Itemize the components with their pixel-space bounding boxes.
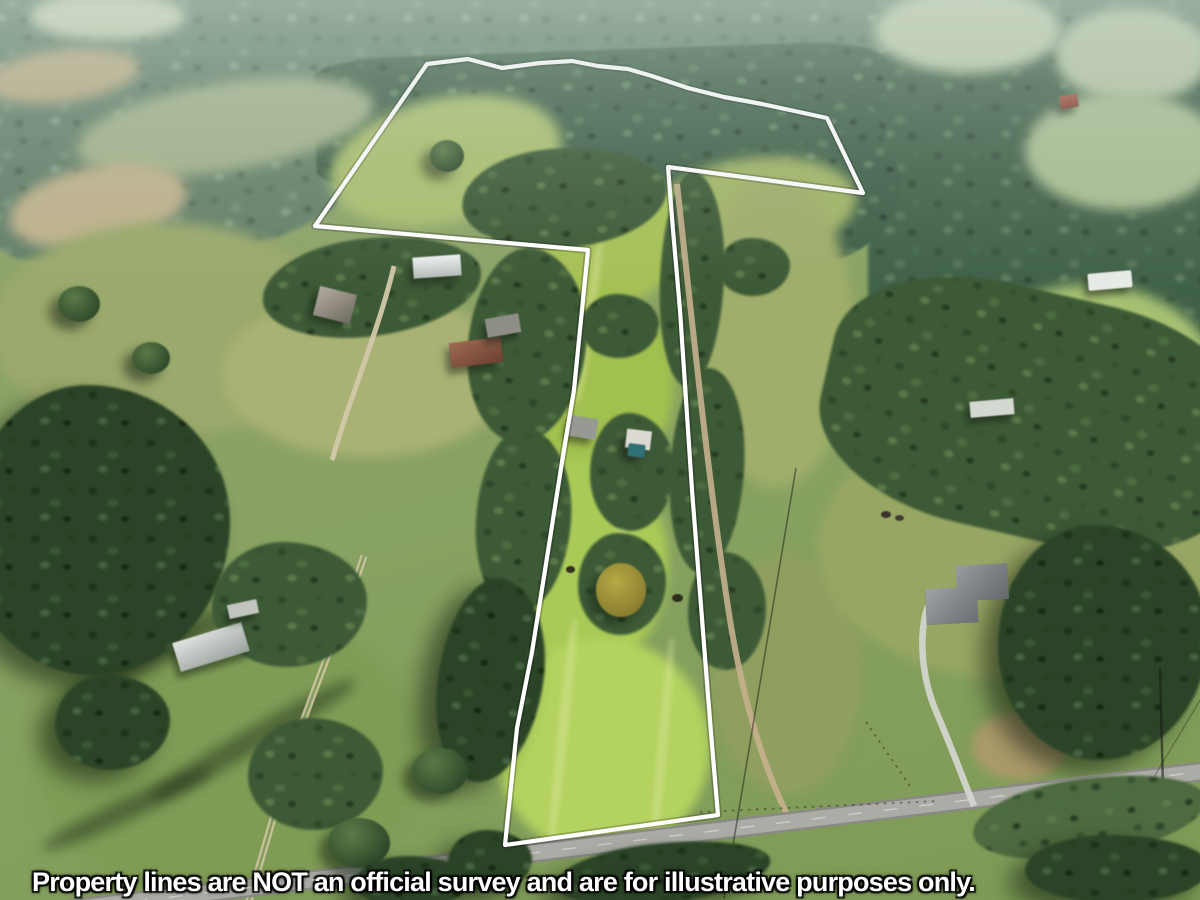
property-boundary-polygon <box>315 59 863 845</box>
aerial-photo: Property lines are NOT an official surve… <box>0 0 1200 900</box>
property-boundary-shadow <box>315 59 863 845</box>
boundary-layer <box>0 0 1200 900</box>
disclaimer-text: Property lines are NOT an official surve… <box>32 867 975 898</box>
